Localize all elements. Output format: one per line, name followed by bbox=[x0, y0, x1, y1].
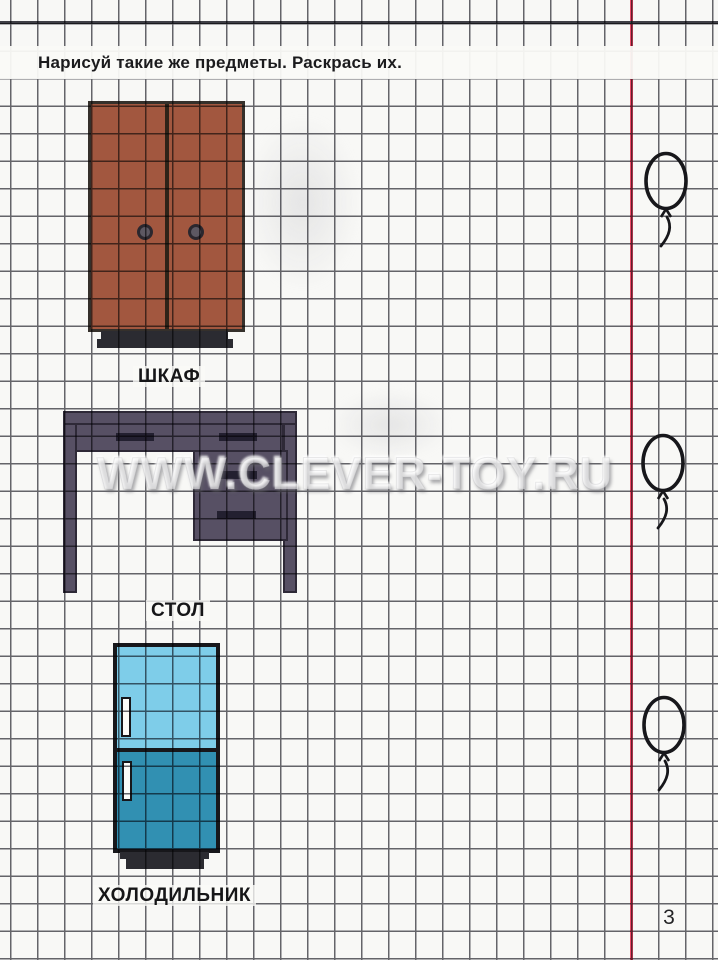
wardrobe-knob-left bbox=[137, 224, 153, 240]
desk-drawer-handle bbox=[116, 433, 154, 441]
top-rule-line bbox=[0, 21, 718, 24]
refrigerator-base bbox=[126, 859, 204, 869]
workbook-page: Нарисуй такие же предметы. Раскрась их. … bbox=[0, 0, 718, 960]
wardrobe-label: ШКАФ bbox=[133, 366, 205, 387]
wardrobe-knob-right bbox=[188, 224, 204, 240]
refrigerator-body bbox=[113, 643, 220, 853]
wardrobe-body bbox=[88, 101, 245, 332]
instruction-band: Нарисуй такие же предметы. Раскрась их. bbox=[0, 46, 718, 79]
desk-tabletop bbox=[63, 411, 297, 425]
desk-drawer-handle bbox=[219, 433, 257, 441]
refrigerator-top-door bbox=[117, 647, 216, 748]
refrigerator-handle-top bbox=[121, 697, 131, 737]
watermark: WWW.CLEVER-TOY.RU bbox=[58, 448, 652, 500]
wardrobe-base bbox=[97, 339, 233, 348]
desk-drawer-handle bbox=[217, 511, 256, 519]
page-number: 3 bbox=[658, 906, 680, 930]
desk-label: СТОЛ bbox=[146, 600, 210, 621]
wardrobe-base bbox=[101, 331, 228, 339]
scan-shadow bbox=[245, 115, 360, 290]
refrigerator-label: ХОЛОДИЛЬНИК bbox=[93, 885, 256, 906]
refrigerator-base bbox=[120, 852, 209, 859]
wardrobe-door-divider bbox=[165, 104, 169, 329]
balloon-icon bbox=[638, 694, 690, 796]
balloon-icon bbox=[640, 150, 692, 252]
instruction-text: Нарисуй такие же предметы. Раскрась их. bbox=[38, 53, 402, 73]
refrigerator-handle-bottom bbox=[122, 761, 132, 801]
